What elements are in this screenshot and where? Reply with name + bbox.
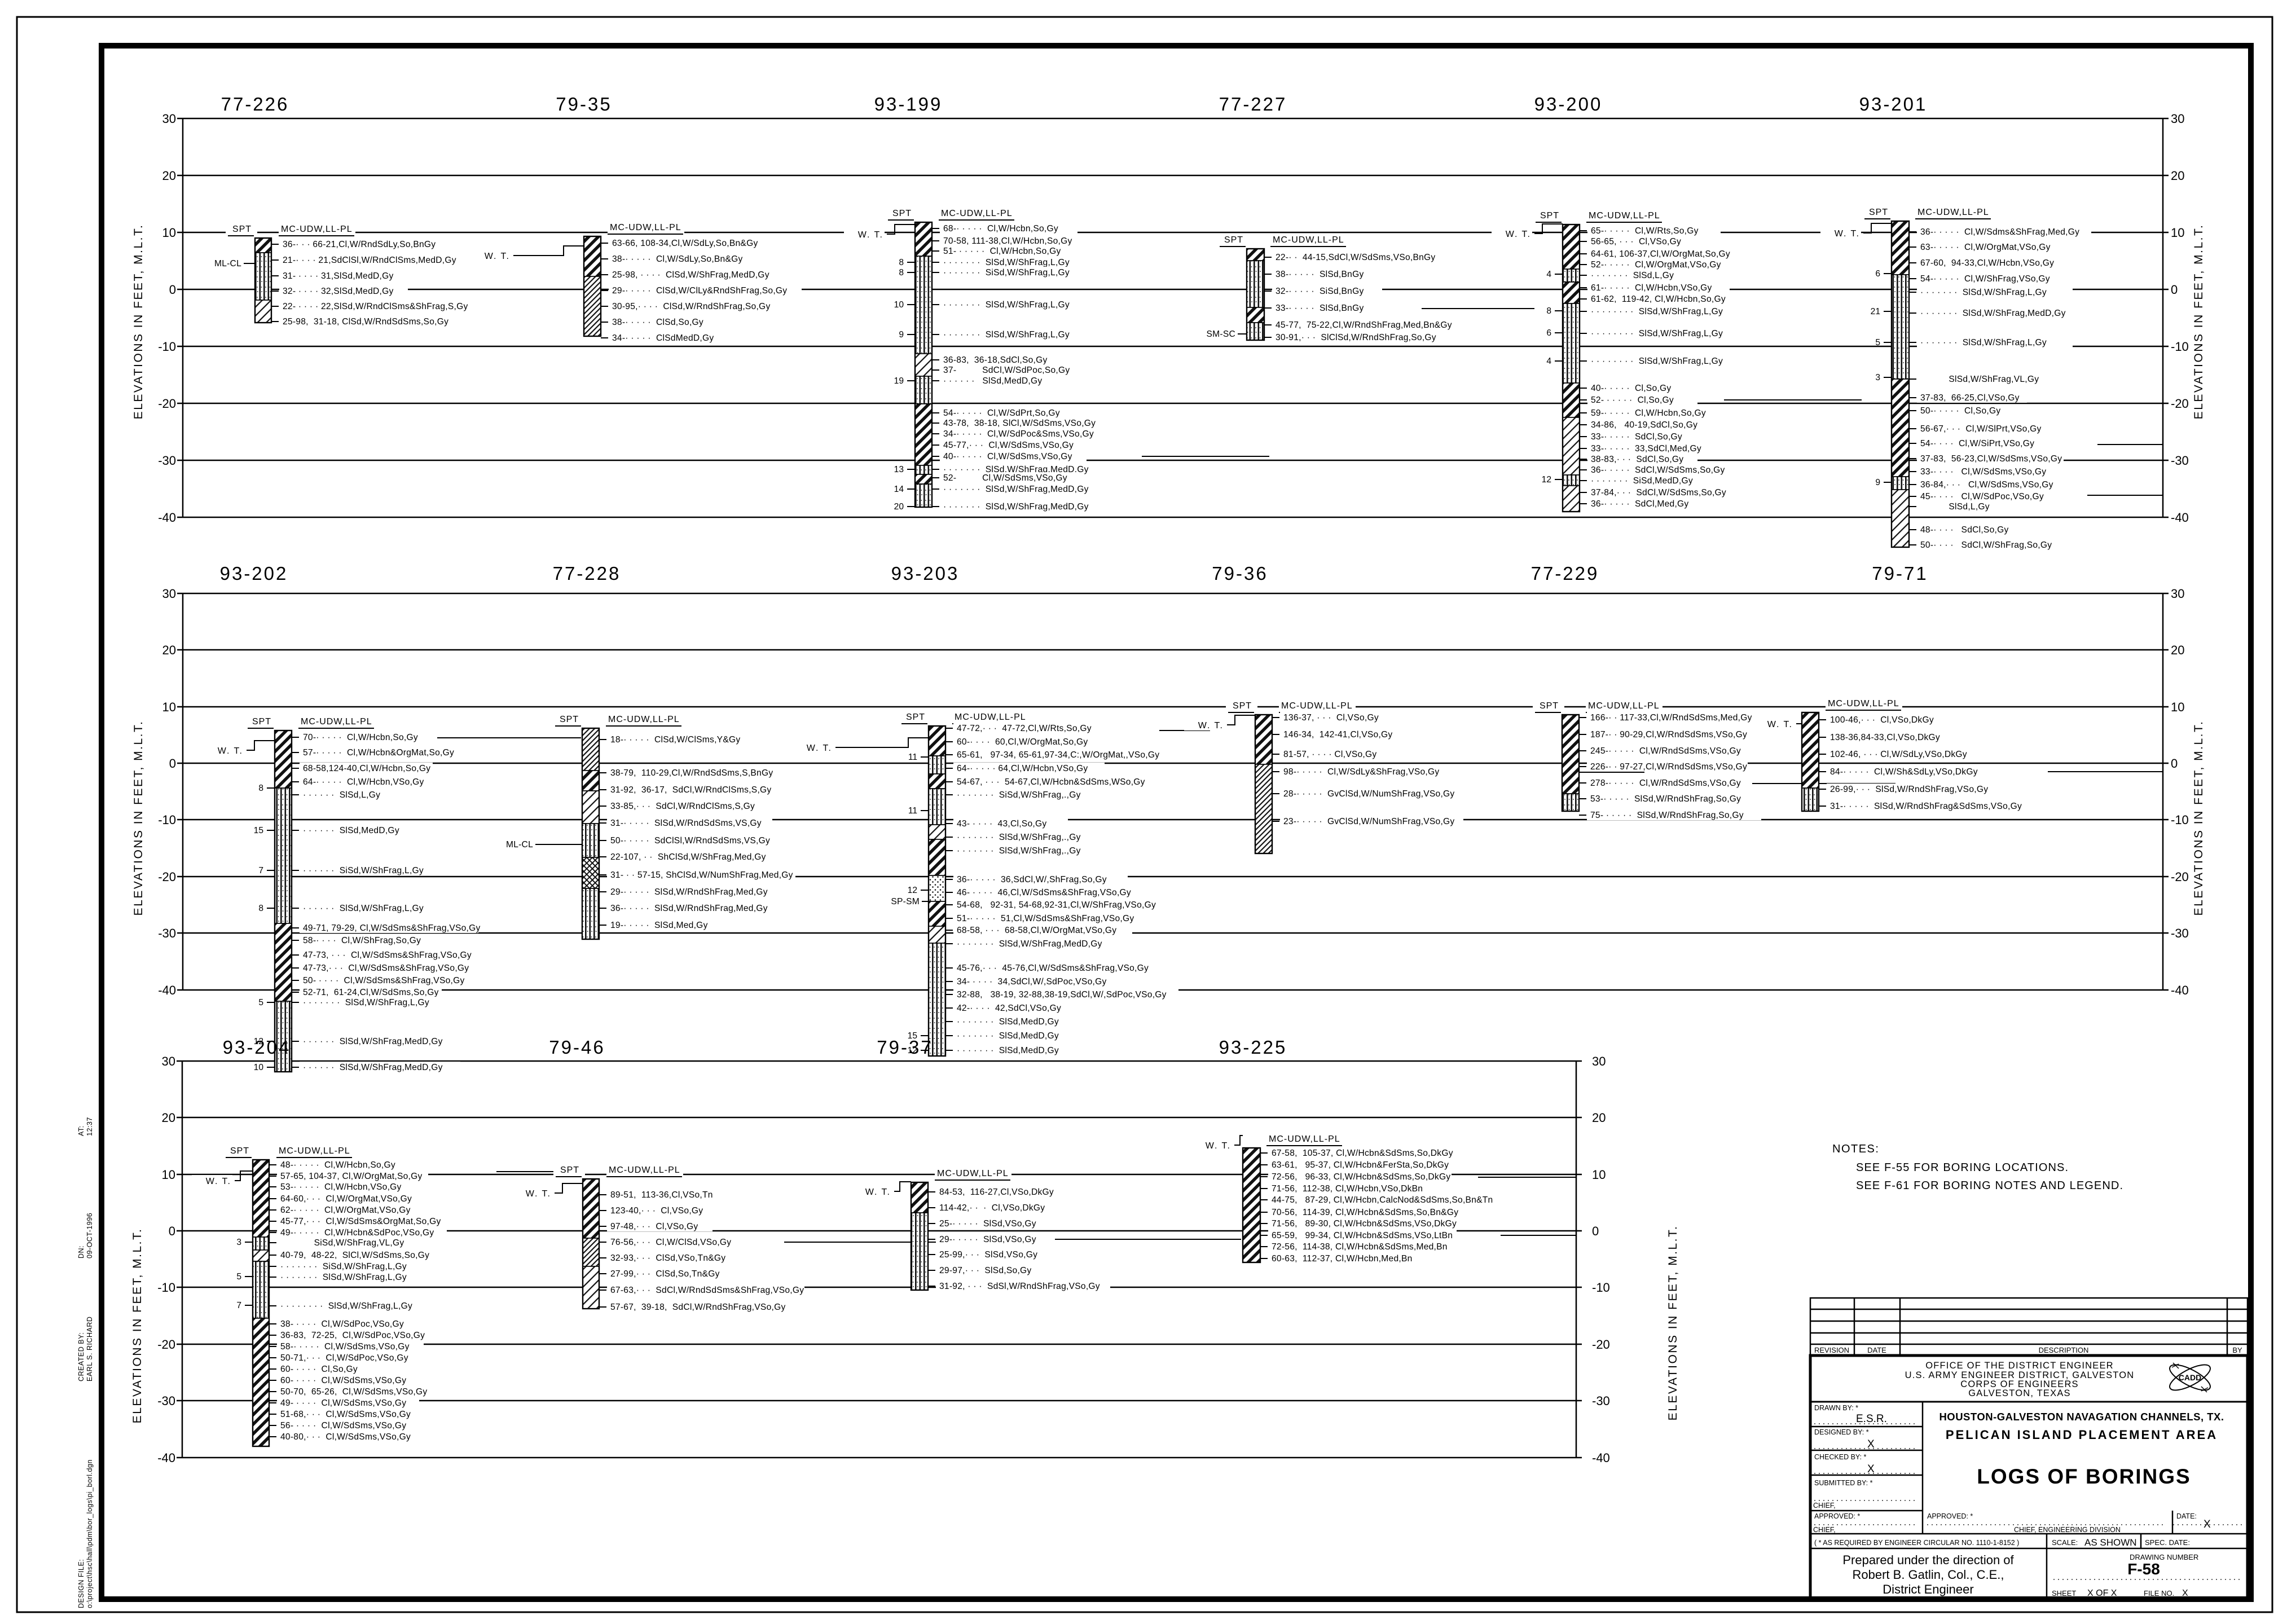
svg-text:3: 3: [1875, 373, 1880, 382]
svg-text:-10: -10: [2171, 340, 2189, 354]
svg-text:47-73,· · · Cl,W/SdSms&ShFrag: 47-73,· · · Cl,W/SdSms&ShFrag,VSo,Gy: [303, 963, 469, 973]
svg-text:54-· · · · · Cl,W/ShFrag,VSo,: 54-· · · · · Cl,W/ShFrag,VSo,Gy: [1920, 274, 2050, 284]
svg-text:20: 20: [162, 169, 176, 183]
svg-text:53-· · · · · Cl,W/Hcbn,VSo,Gy: 53-· · · · · Cl,W/Hcbn,VSo,Gy: [280, 1182, 402, 1192]
svg-text:· · · · · · · SlSd,W/ShFrag,M: · · · · · · · SlSd,W/ShFrag,MedD,Gy: [943, 485, 1089, 494]
svg-text:50-· · · · SdCl,W/ShFrag,So,: 50-· · · · SdCl,W/ShFrag,So,Gy: [1920, 540, 2052, 550]
svg-text:AT:: AT:: [77, 1125, 85, 1136]
svg-text:67-60, 94-33,Cl,W/Hcbn,VSo,Gy: 67-60, 94-33,Cl,W/Hcbn,VSo,Gy: [1920, 258, 2054, 268]
svg-text:52-71, 61-24,Cl,W/SdSms,So,Gy: 52-71, 61-24,Cl,W/SdSms,So,Gy: [303, 988, 439, 997]
svg-text:166-· · 117-33,Cl,W/RndSdSms,M: 166-· · 117-33,Cl,W/RndSdSms,Med,Gy: [1590, 713, 1752, 723]
svg-text:61-62, 119-42, Cl,W/Hcbn,So,G: 61-62, 119-42, Cl,W/Hcbn,So,Gy: [1591, 294, 1726, 304]
svg-text:20: 20: [894, 502, 904, 512]
svg-text:36-· · · · · SdCl,W/SdSms,So,: 36-· · · · · SdCl,W/SdSms,So,Gy: [1591, 465, 1725, 475]
svg-text:13: 13: [894, 465, 904, 474]
svg-text:31- · · · · 31,SlSd,MedD,Gy: 31- · · · · 31,SlSd,MedD,Gy: [283, 271, 394, 281]
svg-text:W. T.: W. T.: [1506, 230, 1531, 239]
svg-text:Robert B. Gatlin, Col., C.E.,: Robert B. Gatlin, Col., C.E.,: [1853, 1568, 2004, 1582]
svg-text:15: 15: [254, 826, 264, 835]
svg-text:79-71: 79-71: [1872, 563, 1928, 584]
svg-text:-40: -40: [1592, 1451, 1610, 1465]
svg-text:-30: -30: [158, 454, 176, 468]
svg-text:47-73, · · · Cl,W/SdSms&ShFra: 47-73, · · · Cl,W/SdSms&ShFrag,VSo,Gy: [303, 950, 472, 960]
svg-text:79-37: 79-37: [877, 1037, 933, 1058]
svg-text:SPT: SPT: [232, 225, 252, 234]
svg-text:W. T.: W. T.: [485, 252, 510, 261]
svg-text:W. T.: W. T.: [807, 743, 832, 753]
svg-text:6: 6: [1875, 269, 1880, 279]
svg-text:22-107, · · ShClSd,W/ShFrag,M: 22-107, · · ShClSd,W/ShFrag,Med,Gy: [610, 852, 766, 862]
svg-text:12: 12: [1542, 475, 1551, 485]
svg-text:E.S.R.: E.S.R.: [1856, 1413, 1887, 1425]
svg-text:63-· · · · · Cl,W/OrgMat,VSo,: 63-· · · · · Cl,W/OrgMat,VSo,Gy: [1920, 243, 2051, 252]
svg-text:MC-UDW,LL-PL: MC-UDW,LL-PL: [1281, 701, 1353, 711]
svg-text:8: 8: [258, 904, 263, 913]
svg-text:63-61, 95-37, Cl,W/Hcbn&FerS: 63-61, 95-37, Cl,W/Hcbn&FerSta,So,DkGy: [1272, 1160, 1449, 1170]
svg-text:68-58, · · · 68-58,Cl,W/OrgMa: 68-58, · · · 68-58,Cl,W/OrgMat,VSo,Gy: [957, 926, 1116, 935]
svg-text:-20: -20: [2171, 397, 2189, 411]
svg-text:40-· · · · · Cl,W/SdSms,VSo,G: 40-· · · · · Cl,W/SdSms,VSo,Gy: [943, 452, 1072, 461]
svg-text:37-83, 66-25,Cl,VSo,Gy: 37-83, 66-25,Cl,VSo,Gy: [1920, 393, 2020, 403]
svg-text:-30: -30: [158, 926, 176, 940]
svg-text:FILE NO.: FILE NO.: [2144, 1589, 2174, 1597]
svg-text:54-68, 92-31, 54-68,92-31,Cl: 54-68, 92-31, 54-68,92-31,Cl,W/ShFrag,VS…: [957, 900, 1156, 910]
svg-text:20: 20: [162, 1111, 175, 1125]
svg-text:LOGS OF BORINGS: LOGS OF BORINGS: [1977, 1465, 2191, 1488]
svg-text:45-77,· · · Cl,W/SdSms,VSo,Gy: 45-77,· · · Cl,W/SdSms,VSo,Gy: [943, 441, 1074, 450]
svg-text:-10: -10: [2171, 813, 2189, 827]
svg-text:67-63,· · · SdCl,W/RndSdSms&S: 67-63,· · · SdCl,W/RndSdSms&ShFrag,VSo,G…: [610, 1286, 804, 1295]
svg-text:45-77, 75-22,Cl,W/RndShFrag,M: 45-77, 75-22,Cl,W/RndShFrag,Med,Bn&Gy: [1276, 320, 1452, 330]
svg-text:5: 5: [258, 998, 263, 1007]
svg-text:50-71,· · · Cl,W/SdPoc,VSo,Gy: 50-71,· · · Cl,W/SdPoc,VSo,Gy: [280, 1353, 408, 1363]
svg-text:146-34, 142-41,Cl,VSo,Gy: 146-34, 142-41,Cl,VSo,Gy: [1283, 730, 1392, 740]
svg-text:278-· · · · · Cl,W/RndSdSms,V: 278-· · · · · Cl,W/RndSdSms,VSo,Gy: [1590, 778, 1741, 788]
svg-text:· · · · · · · SlSd,MedD,Gy: · · · · · · · SlSd,MedD,Gy: [957, 1031, 1059, 1041]
svg-text:71-56, 112-38, Cl,W/Hcbn,VSo,: 71-56, 112-38, Cl,W/Hcbn,VSo,DkBn: [1272, 1184, 1423, 1194]
svg-text:77-227: 77-227: [1219, 94, 1287, 115]
svg-text:53-· · · · · SlSd,W/RndShFrag: 53-· · · · · SlSd,W/RndShFrag,So,Gy: [1590, 794, 1741, 804]
svg-text:SPT: SPT: [906, 712, 925, 722]
svg-text:38-83,· · · SdCl,So,Gy: 38-83,· · · SdCl,So,Gy: [1591, 455, 1683, 464]
svg-text:SPT: SPT: [1869, 208, 1888, 217]
svg-text:SiSd,W/ShFrag,VL,Gy: SiSd,W/ShFrag,VL,Gy: [280, 1238, 404, 1248]
svg-text:36-83, 72-25, Cl,W/SdPoc,VSo: 36-83, 72-25, Cl,W/SdPoc,VSo,Gy: [280, 1331, 425, 1340]
svg-text:30: 30: [2171, 112, 2184, 126]
svg-text:PELICAN ISLAND PLACEMENT AR: PELICAN ISLAND PLACEMENT AREA: [1946, 1428, 2218, 1442]
svg-text:· · · · · · · SlSd,MedD,Gy: · · · · · · · SlSd,MedD,Gy: [957, 1017, 1059, 1027]
svg-text:32-· · · · · SiSd,BnGy: 32-· · · · · SiSd,BnGy: [1276, 287, 1364, 296]
svg-text:56- · · · · Cl,W/SdSms,VSo,Gy: 56- · · · · Cl,W/SdSms,VSo,Gy: [280, 1421, 406, 1431]
svg-text:CHIEF,: CHIEF,: [1813, 1502, 1836, 1509]
svg-text:11: 11: [908, 752, 917, 762]
svg-text:-10: -10: [157, 1280, 175, 1295]
svg-text:· · · · · · · SlSd,W/ShFrag,L: · · · · · · · SlSd,W/ShFrag,L,Gy: [943, 258, 1070, 267]
svg-text:· · · · · · · · SlSd,W/ShFrag: · · · · · · · · SlSd,W/ShFrag,L,Gy: [1591, 307, 1723, 316]
svg-text:MC-UDW,LL-PL: MC-UDW,LL-PL: [1269, 1134, 1340, 1144]
svg-text:84-· · · · · Cl,W/Sh&SdLy,VSo: 84-· · · · · Cl,W/Sh&SdLy,VSo,DkGy: [1830, 767, 1978, 777]
svg-text:MC-UDW,LL-PL: MC-UDW,LL-PL: [955, 712, 1026, 722]
svg-text:SPT: SPT: [230, 1146, 249, 1156]
svg-text:31-· · · · · SlSd,W/RndShFrag: 31-· · · · · SlSd,W/RndShFrag&SdSms,VSo,…: [1830, 802, 2022, 811]
svg-text:SPT: SPT: [1540, 701, 1559, 711]
svg-text:57-· · · · · Cl,W/Hcbn&OrgMat: 57-· · · · · Cl,W/Hcbn&OrgMat,So,Gy: [303, 748, 454, 758]
svg-text:23-· · · · · GvClSd,W/NumShFr: 23-· · · · · GvClSd,W/NumShFrag,VSo,Gy: [1283, 817, 1454, 826]
svg-text:10: 10: [894, 300, 904, 310]
svg-text:· · · · · · · SlSd,W/ShFrag,.: · · · · · · · SlSd,W/ShFrag,.,Gy: [957, 833, 1081, 842]
svg-text:52-· · · · · Cl,W/OrgMat,VSo,: 52-· · · · · Cl,W/OrgMat,VSo,Gy: [1591, 260, 1721, 270]
svg-text:8: 8: [899, 258, 904, 267]
svg-text:20: 20: [2171, 169, 2184, 183]
svg-text:38-· · · · · Cl,W/SdLy,So,Bn&: 38-· · · · · Cl,W/SdLy,So,Bn&Gy: [612, 254, 743, 264]
svg-text:· · · · · · SlSd,W/ShFrag,Med: · · · · · · SlSd,W/ShFrag,MedD,Gy: [303, 1037, 443, 1046]
svg-text:· · · · · · · SiSd,W/ShFrag,L: · · · · · · · SiSd,W/ShFrag,L,Gy: [280, 1262, 407, 1271]
svg-text:36-· · · · · 36,SdCl,W/,ShFra: 36-· · · · · 36,SdCl,W/,ShFrag,So,Gy: [957, 875, 1107, 884]
svg-text:46- · · · · 46,Cl,W/SdSms&ShF: 46- · · · · 46,Cl,W/SdSms&ShFrag,VSo,Gy: [957, 888, 1131, 897]
svg-text:65-61, 97-34, 65-61,97-34,C:: 65-61, 97-34, 65-61,97-34,C:,W/OrgMat,,V…: [957, 750, 1159, 760]
svg-text:APPROVED: *: APPROVED: *: [1814, 1512, 1860, 1520]
svg-text:18-· · · · · ClSd,W/ClSms,Y&G: 18-· · · · · ClSd,W/ClSms,Y&Gy: [610, 735, 740, 745]
svg-text:· · · · · · SlSd,L,Gy: · · · · · · SlSd,L,Gy: [303, 790, 380, 800]
svg-text:MC-UDW,LL-PL: MC-UDW,LL-PL: [1273, 235, 1344, 245]
svg-text:89-51, 113-36,Cl,VSo,Tn: 89-51, 113-36,Cl,VSo,Tn: [610, 1190, 713, 1200]
svg-text:DESCRIPTION: DESCRIPTION: [2039, 1346, 2089, 1354]
svg-text:70-· · · · · Cl,W/Hcbn,So,Gy: 70-· · · · · Cl,W/Hcbn,So,Gy: [303, 733, 418, 742]
svg-text:64-· · · · · 64,Cl,W/Hcbn,VSo,: 64-· · · · · 64,Cl,W/Hcbn,VSo,Gy: [957, 764, 1088, 773]
svg-text:70-58, 111-38,Cl,W/Hcbn,So,Gy: 70-58, 111-38,Cl,W/Hcbn,So,Gy: [943, 236, 1072, 246]
svg-text:o:\project\hsc\hall\pdm\bor_lo: o:\project\hsc\hall\pdm\bor_logs\pi_borl…: [86, 1459, 94, 1608]
svg-text:51-68,· · · Cl,W/SdSms,VSo,Gy: 51-68,· · · Cl,W/SdSms,VSo,Gy: [280, 1410, 411, 1419]
svg-text:19: 19: [894, 376, 904, 386]
svg-text:· · · · · · · SlSd,W/ShFrag,L: · · · · · · · SlSd,W/ShFrag,L,Gy: [1920, 338, 2047, 347]
svg-text:37- SdCl,W/SdPoc,So,G: 37- SdCl,W/SdPoc,So,Gy: [943, 366, 1070, 375]
svg-text:56-67,· · · Cl,W/SlPrt,VSo,Gy: 56-67,· · · Cl,W/SlPrt,VSo,Gy: [1920, 424, 2042, 434]
svg-text:-10: -10: [158, 340, 176, 354]
svg-text:MC-UDW,LL-PL: MC-UDW,LL-PL: [937, 1169, 1009, 1178]
svg-text:32-88, 38-19, 32-88,38-19,Sd: 32-88, 38-19, 32-88,38-19,SdCl,W/,SdPoc,…: [957, 990, 1167, 1000]
svg-text:81-57, · · · · Cl,VSo,Gy: 81-57, · · · · Cl,VSo,Gy: [1283, 750, 1376, 759]
svg-text:DESIGNED BY: *: DESIGNED BY: *: [1814, 1428, 1869, 1436]
svg-text:MC-UDW,LL-PL: MC-UDW,LL-PL: [941, 209, 1013, 218]
svg-text:ELEVATIONS IN FEET, M.L.T.: ELEVATIONS IN FEET, M.L.T.: [132, 224, 145, 420]
svg-text:MC-UDW,LL-PL: MC-UDW,LL-PL: [279, 1146, 350, 1156]
svg-text:30: 30: [162, 112, 176, 126]
svg-text:ELEVATIONS IN FEET, M.L.T.: ELEVATIONS IN FEET, M.L.T.: [2192, 720, 2205, 916]
svg-text:34- · · · · 34,SdCl,W/,SdPoc,: 34- · · · · 34,SdCl,W/,SdPoc,VSo,Gy: [957, 977, 1107, 987]
svg-text:21-· · · · 21,SdClSl,W/RndClSm: 21-· · · · 21,SdClSl,W/RndClSms,MedD,Gy: [283, 256, 456, 265]
svg-text:136-37, · · · Cl,VSo,Gy: 136-37, · · · Cl,VSo,Gy: [1283, 713, 1379, 723]
svg-text:-30: -30: [2171, 926, 2189, 940]
svg-text:SPT: SPT: [560, 1165, 579, 1175]
svg-text:7: 7: [258, 866, 263, 875]
svg-text:W. T.: W. T.: [206, 1177, 231, 1186]
svg-text:· · · · · · · · SlSd,W/ShFrag: · · · · · · · · SlSd,W/ShFrag,L,Gy: [1591, 357, 1723, 366]
svg-text:· · · · · · · SlSd,W/ShFrag,L: · · · · · · · SlSd,W/ShFrag,L,Gy: [303, 998, 429, 1007]
svg-text:SPT: SPT: [252, 717, 271, 727]
svg-text:SPT: SPT: [892, 209, 912, 218]
svg-text:-40: -40: [2171, 983, 2189, 997]
svg-text:50-· · · · · Cl,So,Gy: 50-· · · · · Cl,So,Gy: [1920, 406, 2000, 416]
svg-text:· · · · · · · SlSd,W/ShFrag,M: · · · · · · · SlSd,W/ShFrag,MedD,Gy: [1920, 309, 2066, 318]
svg-text:38-· · · · · ClSd,So,Gy: 38-· · · · · ClSd,So,Gy: [612, 318, 703, 327]
svg-text:ELEVATIONS IN FEET, M.L.T.: ELEVATIONS IN FEET, M.L.T.: [131, 1228, 144, 1424]
svg-text:38-79, 110-29,Cl,W/RndSdSms,S: 38-79, 110-29,Cl,W/RndSdSms,S,BnGy: [610, 768, 773, 778]
svg-text:65-· · · · · Cl,W/Rts,So,Gy: 65-· · · · · Cl,W/Rts,So,Gy: [1591, 226, 1699, 236]
svg-text:57-67, 39-18, SdCl,W/RndShFr: 57-67, 39-18, SdCl,W/RndShFrag,VSo,Gy: [610, 1302, 786, 1312]
svg-text:SlSd,W/ShFrag,VL,Gy: SlSd,W/ShFrag,VL,Gy: [1920, 375, 2039, 384]
svg-text:SlSd,L,Gy: SlSd,L,Gy: [1920, 502, 1990, 512]
svg-text:5: 5: [236, 1272, 241, 1282]
svg-text:District Engineer: District Engineer: [1883, 1582, 1973, 1596]
svg-text:· · · · · · · SlSd,L,Gy: · · · · · · · SlSd,L,Gy: [1591, 271, 1674, 280]
svg-text:GALVESTON, TEXAS: GALVESTON, TEXAS: [1968, 1388, 2071, 1398]
svg-text:MC-UDW,LL-PL: MC-UDW,LL-PL: [281, 225, 353, 234]
svg-text:MC-UDW,LL-PL: MC-UDW,LL-PL: [608, 715, 680, 724]
svg-text:54-· · · · Cl,W/SiPrt,VSo,Gy: 54-· · · · Cl,W/SiPrt,VSo,Gy: [1920, 439, 2034, 448]
svg-text:-30: -30: [2171, 454, 2189, 468]
svg-text:4: 4: [1546, 270, 1551, 279]
svg-text:SM-SC: SM-SC: [1207, 329, 1236, 339]
svg-text:54-· · · · · Cl,W/SdPrt,So,Gy: 54-· · · · · Cl,W/SdPrt,So,Gy: [943, 408, 1060, 418]
svg-text:-10: -10: [1592, 1280, 1610, 1295]
svg-text:0: 0: [169, 756, 176, 771]
svg-text:-20: -20: [158, 870, 176, 884]
svg-text:14: 14: [894, 485, 904, 494]
svg-text:79-36: 79-36: [1212, 563, 1268, 584]
svg-text:W. T.: W. T.: [1206, 1141, 1231, 1151]
svg-text:30-95,· · · · ClSd,W/RndShFra: 30-95,· · · · ClSd,W/RndShFrag,So,Gy: [612, 302, 771, 311]
svg-text:28-· · · · · GvClSd,W/NumShFr: 28-· · · · · GvClSd,W/NumShFrag,VSo,Gy: [1283, 789, 1454, 799]
svg-text:30: 30: [162, 587, 176, 601]
svg-text:6: 6: [1546, 328, 1551, 338]
svg-text:10: 10: [1592, 1168, 1606, 1182]
svg-text:09-OCT-1996: 09-OCT-1996: [86, 1213, 94, 1258]
svg-text:50-· · · · · SdClSl,W/RndSdSm: 50-· · · · · SdClSl,W/RndSdSms,VS,Gy: [610, 836, 770, 846]
svg-text:-40: -40: [157, 1451, 175, 1465]
svg-text:DATE: DATE: [1867, 1346, 1886, 1354]
svg-text:MC-UDW,LL-PL: MC-UDW,LL-PL: [1588, 701, 1660, 711]
svg-text:68-58,124-40,Cl,W/Hcbn,So,Gy: 68-58,124-40,Cl,W/Hcbn,So,Gy: [303, 764, 430, 773]
svg-text:· · · · · · · · SlSd,W/ShFrag: · · · · · · · · SlSd,W/ShFrag,L,Gy: [1591, 329, 1723, 338]
svg-text:3: 3: [236, 1238, 241, 1247]
svg-text:10: 10: [2171, 700, 2184, 714]
svg-text:· · · · · · · SiSd,MedD,Gy: · · · · · · · SiSd,MedD,Gy: [1591, 476, 1693, 486]
svg-text:48-· · · · SdCl,So,Gy: 48-· · · · SdCl,So,Gy: [1920, 525, 2009, 535]
svg-text:9: 9: [1875, 478, 1880, 487]
svg-text:CHIEF, ENGINEERING DIVISION: CHIEF, ENGINEERING DIVISION: [2014, 1526, 2121, 1534]
svg-text:36-· · · · · SdCl,Med,Gy: 36-· · · · · SdCl,Med,Gy: [1591, 499, 1688, 509]
svg-text:19-· · · · · SlSd,Med,Gy: 19-· · · · · SlSd,Med,Gy: [610, 921, 708, 930]
svg-text:40-80,· · · Cl,W/SdSms,VSo,Gy: 40-80,· · · Cl,W/SdSms,VSo,Gy: [280, 1432, 411, 1442]
svg-text:97-48,· · · Cl,VSo,Gy: 97-48,· · · Cl,VSo,Gy: [610, 1222, 698, 1231]
svg-text:( * AS REQUIRED BY ENGINEER C: ( * AS REQUIRED BY ENGINEER CIRCULAR NO.…: [1814, 1539, 2019, 1547]
svg-text:· · · · · · · SlSd,W/ShFrag,L: · · · · · · · SlSd,W/ShFrag,L,Gy: [943, 330, 1070, 340]
svg-text:0: 0: [169, 1224, 175, 1238]
svg-text:102-46, · · · Cl,W/SdLy,VSo,Dk: 102-46, · · · Cl,W/SdLy,VSo,DkGy: [1830, 750, 1967, 759]
svg-text:93-199: 93-199: [874, 94, 943, 115]
svg-text:20: 20: [2171, 643, 2184, 657]
svg-text:31- · · 57-15, ShClSd,W/NumShF: 31- · · 57-15, ShClSd,W/NumShFrag,Med,Gy: [610, 870, 793, 880]
svg-text:8: 8: [899, 268, 904, 278]
svg-text:32- · · · · 32,SlSd,MedD,Gy: 32- · · · · 32,SlSd,MedD,Gy: [283, 287, 394, 296]
svg-text:SPT: SPT: [560, 715, 579, 724]
svg-text:75- · · · · · SlSd,W/RndShFra: 75- · · · · · SlSd,W/RndShFrag,So,Gy: [1590, 811, 1744, 820]
svg-text:67-58, 105-37, Cl,W/Hcbn&SdSm: 67-58, 105-37, Cl,W/Hcbn&SdSms,So,DkGy: [1272, 1148, 1453, 1158]
svg-text:8: 8: [1546, 306, 1551, 316]
svg-text:64-60,· · · Cl,W/OrgMat,VSo,G: 64-60,· · · Cl,W/OrgMat,VSo,Gy: [280, 1194, 412, 1204]
svg-text:DRAWN BY: *: DRAWN BY: *: [1814, 1404, 1858, 1412]
svg-text:12:37: 12:37: [86, 1117, 94, 1136]
svg-text:33-85,· · · SdCl,W/RndClSms,S: 33-85,· · · SdCl,W/RndClSms,S,Gy: [610, 802, 755, 811]
svg-text:58-· · · · · Cl,W/SdSms,VSo,G: 58-· · · · · Cl,W/SdSms,VSo,Gy: [280, 1342, 410, 1352]
svg-text:W. T.: W. T.: [1835, 229, 1860, 239]
svg-text:45-77,· · · Cl,W/SdSms&OrgMat: 45-77,· · · Cl,W/SdSms&OrgMat,So,Gy: [280, 1217, 441, 1226]
svg-text:33-· · · · · SdCl,So,Gy: 33-· · · · · SdCl,So,Gy: [1591, 432, 1682, 442]
svg-text:245-· · · · · Cl,W/RndSdSms,V: 245-· · · · · Cl,W/RndSdSms,VSo,Gy: [1590, 746, 1741, 756]
svg-text:0: 0: [169, 283, 176, 297]
svg-text:20: 20: [1592, 1111, 1606, 1125]
svg-text:0: 0: [1592, 1224, 1599, 1238]
svg-text:49-71, 79-29, Cl,W/SdSms&ShFra: 49-71, 79-29, Cl,W/SdSms&ShFrag,VSo,Gy: [303, 923, 481, 933]
svg-text:NOTES:: NOTES:: [1832, 1143, 1879, 1155]
svg-text:X OF X: X OF X: [2087, 1588, 2117, 1598]
svg-text:33-· · · · Cl,W/SdSms,VSo,Gy: 33-· · · · Cl,W/SdSms,VSo,Gy: [1920, 467, 2046, 477]
svg-text:65-59, 99-34, Cl,W/Hcbn&SdSm: 65-59, 99-34, Cl,W/Hcbn&SdSms,VSo,LtBn: [1272, 1231, 1453, 1240]
svg-text:11: 11: [908, 806, 917, 816]
svg-text:30: 30: [1592, 1054, 1606, 1068]
svg-text:114-42,· · · Cl,VSo,DkGy: 114-42,· · · Cl,VSo,DkGy: [939, 1203, 1045, 1213]
svg-text:BY: BY: [2232, 1346, 2242, 1354]
svg-text:93-202: 93-202: [220, 563, 288, 584]
svg-text:84-53, 116-27,Cl,VSo,DkGy: 84-53, 116-27,Cl,VSo,DkGy: [939, 1187, 1054, 1197]
svg-text:72-56, 114-38, Cl,W/Hcbn&SdSm: 72-56, 114-38, Cl,W/Hcbn&SdSms,Med,Bn: [1272, 1242, 1448, 1252]
svg-text:AS SHOWN: AS SHOWN: [2084, 1537, 2137, 1548]
svg-text:138-36,84-33,Cl,VSo,DkGy: 138-36,84-33,Cl,VSo,DkGy: [1830, 733, 1940, 742]
svg-text:47-72,· · · 47-72,Cl,W/Rts,So: 47-72,· · · 47-72,Cl,W/Rts,So,Gy: [957, 724, 1092, 733]
svg-text:-20: -20: [2171, 870, 2189, 884]
svg-text:· · · · · · · · SlSd,W/ShFrag: · · · · · · · · SlSd,W/ShFrag,L,Gy: [280, 1301, 412, 1311]
svg-text:SEE F-61 FOR BORING NOTES AND: SEE F-61 FOR BORING NOTES AND LEGEND.: [1856, 1180, 2123, 1192]
svg-text:MC-UDW,LL-PL: MC-UDW,LL-PL: [610, 223, 681, 232]
svg-text:APPROVED: *: APPROVED: *: [1927, 1512, 1973, 1520]
svg-text:10: 10: [162, 700, 176, 714]
svg-text:43- · · · · 43,Cl,So,Gy: 43- · · · · 43,Cl,So,Gy: [957, 819, 1046, 829]
svg-text:77-228: 77-228: [553, 563, 621, 584]
svg-text:CHECKED BY: *: CHECKED BY: *: [1814, 1453, 1867, 1461]
svg-text:40-· · · · · Cl,So,Gy: 40-· · · · · Cl,So,Gy: [1591, 384, 1671, 393]
svg-text:93-200: 93-200: [1534, 94, 1603, 115]
svg-text:ML-CL: ML-CL: [214, 259, 241, 269]
svg-text:· · · · · · · SiSd,W/ShFrag,.: · · · · · · · SiSd,W/ShFrag,.,Gy: [957, 790, 1081, 800]
svg-text:79-35: 79-35: [556, 94, 612, 115]
svg-text:72-56, 96-33, Cl,W/Hcbn&SdSm: 72-56, 96-33, Cl,W/Hcbn&SdSms,So,DkGy: [1272, 1172, 1450, 1182]
svg-text:ML-CL: ML-CL: [506, 840, 533, 850]
svg-text:DESIGN FILE:: DESIGN FILE:: [77, 1559, 85, 1608]
svg-text:10: 10: [2171, 226, 2184, 240]
svg-text:45-76,· · · 45-76,Cl,W/SdSms&: 45-76,· · · 45-76,Cl,W/SdSms&ShFrag,VSo,…: [957, 963, 1149, 973]
svg-text:ELEVATIONS IN FEET, M.L.T.: ELEVATIONS IN FEET, M.L.T.: [1666, 1225, 1679, 1421]
svg-text:W. T.: W. T.: [858, 230, 883, 240]
svg-text:36-· · · · · SlSd,W/RndShFrag: 36-· · · · · SlSd,W/RndShFrag,Med,Gy: [610, 904, 768, 913]
svg-text:12: 12: [908, 886, 917, 895]
svg-text:34-86, 40-19,SdCl,So,Gy: 34-86, 40-19,SdCl,So,Gy: [1591, 420, 1697, 430]
svg-text:SPEC. DATE:: SPEC. DATE:: [2145, 1538, 2190, 1547]
svg-text:-40: -40: [158, 510, 176, 525]
svg-text:MC-UDW,LL-PL: MC-UDW,LL-PL: [301, 717, 372, 727]
svg-text:98-· · · · · Cl,W/SdLy&ShFrag: 98-· · · · · Cl,W/SdLy&ShFrag,VSo,Gy: [1283, 767, 1439, 777]
svg-text:10: 10: [254, 1063, 264, 1072]
svg-text:22- · · · · 22,SlSd,W/RndClSms: 22- · · · · 22,SlSd,W/RndClSms&ShFrag,S,…: [283, 302, 468, 311]
svg-text:60- · · · · Cl,W/SdSms,VSo,Gy: 60- · · · · Cl,W/SdSms,VSo,Gy: [280, 1376, 406, 1385]
svg-text:31-· · · · · SlSd,W/RndSdSms,: 31-· · · · · SlSd,W/RndSdSms,VS,Gy: [610, 818, 762, 828]
svg-text:SPT: SPT: [1540, 211, 1559, 221]
svg-text:Prepared under the direction o: Prepared under the direction of: [1842, 1553, 2014, 1567]
svg-text:25-· · · · · SlSd,VSo,Gy: 25-· · · · · SlSd,VSo,Gy: [939, 1219, 1036, 1229]
svg-text:-30: -30: [157, 1394, 175, 1408]
svg-text:SEE F-55 FOR BORING LOCATIONS.: SEE F-55 FOR BORING LOCATIONS.: [1856, 1161, 2069, 1174]
svg-text:· · · · · · SlSd,W/ShFrag,Med: · · · · · · SlSd,W/ShFrag,MedD,Gy: [303, 1063, 443, 1072]
svg-text:30-91,· · · SlClSd,W/RndShFra: 30-91,· · · SlClSd,W/RndShFrag,So,Gy: [1276, 333, 1436, 342]
svg-text:36-· · · 66-21,Cl,W/RndSdLy,So: 36-· · · 66-21,Cl,W/RndSdLy,So,BnGy: [283, 240, 436, 249]
svg-text:0: 0: [2171, 283, 2178, 297]
svg-text:93-201: 93-201: [1859, 94, 1928, 115]
svg-text:93-204: 93-204: [223, 1037, 291, 1058]
svg-text:· · · · · · · SlSd,W/ShFrag,L: · · · · · · · SlSd,W/ShFrag,L,Gy: [280, 1273, 407, 1282]
svg-text:40-79, 48-22, SlCl,W/SdSms,S: 40-79, 48-22, SlCl,W/SdSms,So,Gy: [280, 1251, 429, 1260]
svg-text:· · · · · · · SlSd,W/ShFrag,L: · · · · · · · SlSd,W/ShFrag,L,Gy: [943, 300, 1070, 310]
svg-text:9: 9: [899, 330, 904, 340]
svg-text:77-226: 77-226: [221, 94, 289, 115]
svg-text:62-· · · · · Cl,W/OrgMat,VSo,: 62-· · · · · Cl,W/OrgMat,VSo,Gy: [280, 1205, 411, 1215]
svg-text:48-· · · · · Cl,W/Hcbn,So,Gy: 48-· · · · · Cl,W/Hcbn,So,Gy: [280, 1160, 395, 1170]
svg-text:30: 30: [2171, 587, 2184, 601]
svg-text:51- · · · · · Cl,W/Hcbn,So,Gy: 51- · · · · · Cl,W/Hcbn,So,Gy: [943, 247, 1061, 256]
svg-text:79-46: 79-46: [549, 1037, 605, 1058]
svg-text:44-75, 87-29, Cl,W/Hcbn,Calc: 44-75, 87-29, Cl,W/Hcbn,CalcNod&SdSms,So…: [1272, 1195, 1493, 1205]
svg-text:10: 10: [162, 1168, 175, 1182]
svg-text:W. T.: W. T.: [865, 1187, 891, 1197]
svg-text:123-40,· · · Cl,VSo,Gy: 123-40,· · · Cl,VSo,Gy: [610, 1206, 703, 1216]
svg-text:21: 21: [1871, 307, 1880, 316]
svg-text:27-99,· · · ClSd,So,Tn&Gy: 27-99,· · · ClSd,So,Tn&Gy: [610, 1269, 720, 1279]
svg-text:29-· · · · · SlSd,VSo,Gy: 29-· · · · · SlSd,VSo,Gy: [939, 1235, 1036, 1244]
svg-text:8: 8: [258, 784, 263, 793]
svg-text:29-· · · · · SlSd,W/RndShFrag: 29-· · · · · SlSd,W/RndShFrag,Med,Gy: [610, 887, 768, 897]
svg-text:70-56, 114-39, Cl,W/Hcbn&SdSm: 70-56, 114-39, Cl,W/Hcbn&SdSms,So,Bn&Gy: [1272, 1208, 1458, 1217]
svg-text:29-97,· · · SlSd,So,Gy: 29-97,· · · SlSd,So,Gy: [939, 1266, 1031, 1275]
svg-text:-40: -40: [158, 983, 176, 997]
svg-text:22-· · 44-15,SdCl,W/SdSms,VSo: 22-· · 44-15,SdCl,W/SdSms,VSo,BnGy: [1276, 253, 1435, 262]
svg-text:26-99,· · · SlSd,W/RndShFrag,: 26-99,· · · SlSd,W/RndShFrag,VSo,Gy: [1830, 785, 1988, 794]
svg-text:-20: -20: [158, 397, 176, 411]
svg-text:226-· · 97-27,Cl,W/RndSdSms,VS: 226-· · 97-27,Cl,W/RndSdSms,VSo,Gy: [1590, 762, 1747, 772]
svg-text:37-83, 56-23,Cl,W/SdSms,VSo,G: 37-83, 56-23,Cl,W/SdSms,VSo,Gy: [1920, 454, 2062, 464]
svg-text:61-· · · · · Cl,W/Hcbn,VSo,Gy: 61-· · · · · Cl,W/Hcbn,VSo,Gy: [1591, 283, 1712, 293]
svg-text:0: 0: [2171, 756, 2178, 771]
svg-text:187-· · 90-29,Cl,W/RndSdSms,VS: 187-· · 90-29,Cl,W/RndSdSms,VSo,Gy: [1590, 730, 1747, 740]
svg-text:SPT: SPT: [1224, 235, 1243, 245]
svg-text:SCALE:: SCALE:: [2052, 1538, 2078, 1547]
svg-text:49-· · · · · Cl,W/Hcbn&SdPoc,: 49-· · · · · Cl,W/Hcbn&SdPoc,VSo,Gy: [280, 1228, 434, 1238]
svg-text:71-56, 89-30, Cl,W/Hcbn&SdSm: 71-56, 89-30, Cl,W/Hcbn&SdSms,VSo,DkGy: [1272, 1219, 1457, 1229]
svg-text:50-70, 65-26, Cl,W/SdSms,VSo: 50-70, 65-26, Cl,W/SdSms,VSo,Gy: [280, 1387, 427, 1397]
svg-text:7: 7: [236, 1301, 241, 1310]
svg-text:· · · · · · · SlSd,MedD,Gy: · · · · · · · SlSd,MedD,Gy: [957, 1046, 1059, 1055]
svg-text:X: X: [2182, 1588, 2188, 1598]
svg-text:56-65, · · · Cl,VSo,Gy: 56-65, · · · Cl,VSo,Gy: [1591, 237, 1681, 247]
svg-text:· · · · · · · SlSd,W/ShFrag,M: · · · · · · · SlSd,W/ShFrag,MedD,Gy: [943, 502, 1089, 512]
svg-text:-40: -40: [2171, 510, 2189, 525]
